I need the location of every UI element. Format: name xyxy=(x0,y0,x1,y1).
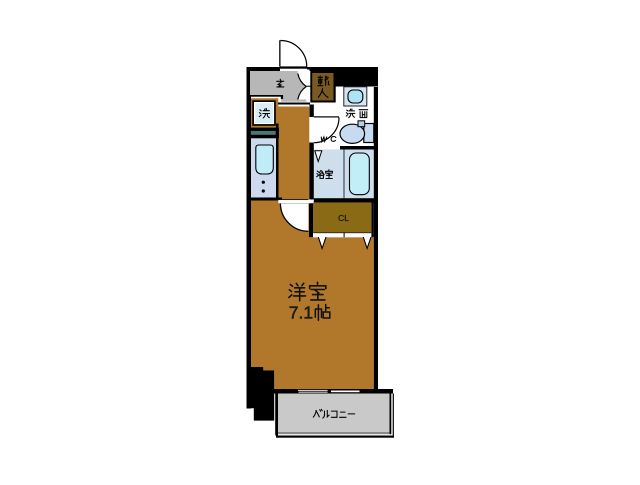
svg-text:7.1: 7.1 xyxy=(289,303,313,323)
svg-text:CL: CL xyxy=(338,213,349,223)
